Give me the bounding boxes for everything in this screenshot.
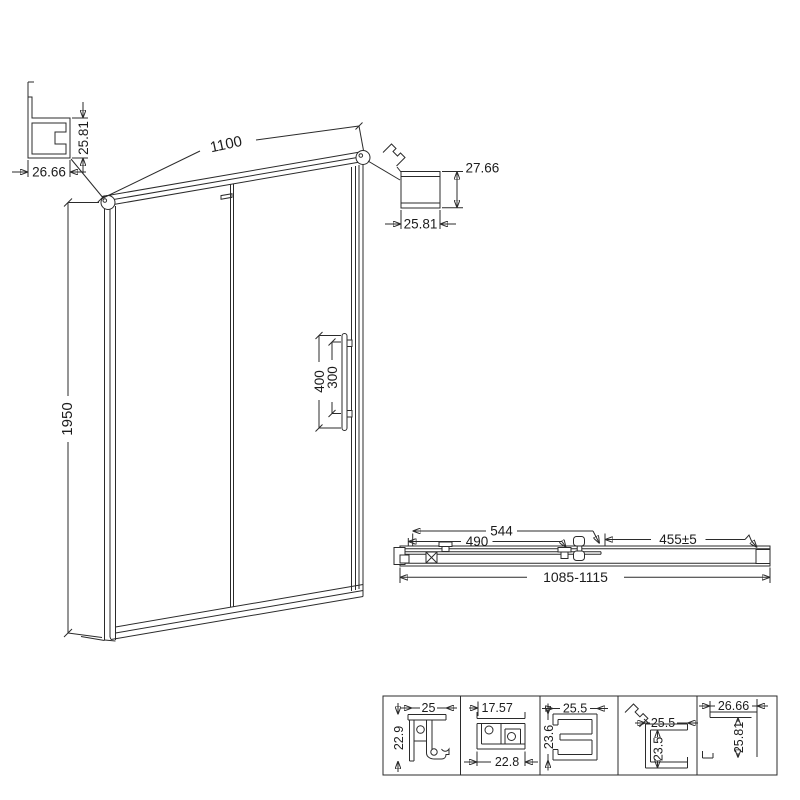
- dim-label-1100: 1100: [209, 133, 244, 156]
- dim-label-300: 300: [325, 366, 340, 389]
- drawing-sheet: 26.66 25.81: [0, 0, 800, 800]
- dim-27-66: 27.66: [442, 161, 499, 208]
- dim-label-cell1-side: 22.9: [392, 726, 406, 750]
- detail-cell-1: 25 22.9: [392, 701, 457, 772]
- dim-455: 455±5: [605, 532, 757, 548]
- cell2-profile-shape: [477, 712, 525, 749]
- profile-details-strip: 25 22.9 17.57: [383, 696, 777, 775]
- dim-label-455: 455±5: [659, 532, 696, 547]
- guide-block: [426, 552, 437, 563]
- dim-label-cell1-top: 25: [422, 701, 436, 715]
- wall-profile-shape: [28, 82, 70, 158]
- dim-label-26-66: 26.66: [32, 165, 66, 180]
- roller-right: [558, 548, 571, 559]
- dim-label-cell4-side: 23.5: [652, 737, 666, 761]
- left-stile: [81, 206, 116, 641]
- dim-label-25-81-left: 25.81: [76, 121, 91, 155]
- dim-label-27-66: 27.66: [466, 161, 500, 176]
- dim-label-cell4-top: 25.5: [651, 716, 675, 730]
- technical-drawing-svg: 26.66 25.81: [0, 0, 800, 800]
- dim-label-cell5-side: 25.81: [732, 722, 746, 753]
- detail-cell-4: 25.5 23.5: [625, 704, 698, 768]
- dim-25-81-right: 25.81: [385, 210, 456, 232]
- panel-divider: [231, 184, 234, 607]
- dim-1950: 1950: [59, 199, 102, 638]
- top-right-profile-detail: 27.66 25.81: [368, 144, 499, 232]
- bottom-rail: [110, 585, 363, 640]
- dim-label-cell3-side: 23.6: [542, 725, 556, 749]
- dim-label-490: 490: [466, 534, 489, 549]
- dim-1085-1115: 1085-1115: [400, 568, 770, 586]
- cell1-profile-shape: [408, 715, 449, 762]
- cell3-profile-shape: [553, 714, 597, 760]
- dim-label-544: 544: [490, 524, 513, 539]
- top-right-roller-knob: [356, 151, 370, 165]
- leader-line: [71, 159, 104, 199]
- dim-label-1085-1115: 1085-1115: [543, 569, 608, 585]
- door-handle: [342, 334, 352, 431]
- plan-view: 544 490 455±5 1085-1115: [394, 524, 770, 586]
- right-stile: [352, 165, 364, 592]
- dim-label-cell2-bottom: 22.8: [495, 755, 519, 769]
- box-profile-shape: [383, 144, 440, 208]
- dim-label-1950: 1950: [59, 402, 76, 435]
- dim-300: 300: [325, 339, 341, 418]
- top-left-profile-detail: 26.66 25.81: [12, 82, 104, 199]
- detail-cell-3: 25.5 23.: [542, 702, 608, 771]
- dim-label-cell5-top: 26.66: [718, 699, 749, 713]
- right-wall-profile: [756, 550, 770, 564]
- dim-label-25-81-right: 25.81: [404, 217, 438, 232]
- dim-label-cell2-top: 17.57: [482, 701, 513, 715]
- left-wall-profile-inner: [400, 555, 409, 563]
- dim-label-cell3-top: 25.5: [563, 702, 587, 716]
- roller-left: [439, 542, 452, 552]
- elevation-view: 1100 1950 400 300: [59, 123, 370, 642]
- hook-clip-shape: [383, 144, 405, 166]
- leader-line: [368, 161, 400, 180]
- dim-26-66: 26.66: [12, 160, 86, 180]
- detail-cell-5: 26.66 25.81: [699, 699, 768, 758]
- dim-490: 490: [408, 534, 566, 549]
- detail-cell-2: 17.57 22.8: [464, 701, 538, 769]
